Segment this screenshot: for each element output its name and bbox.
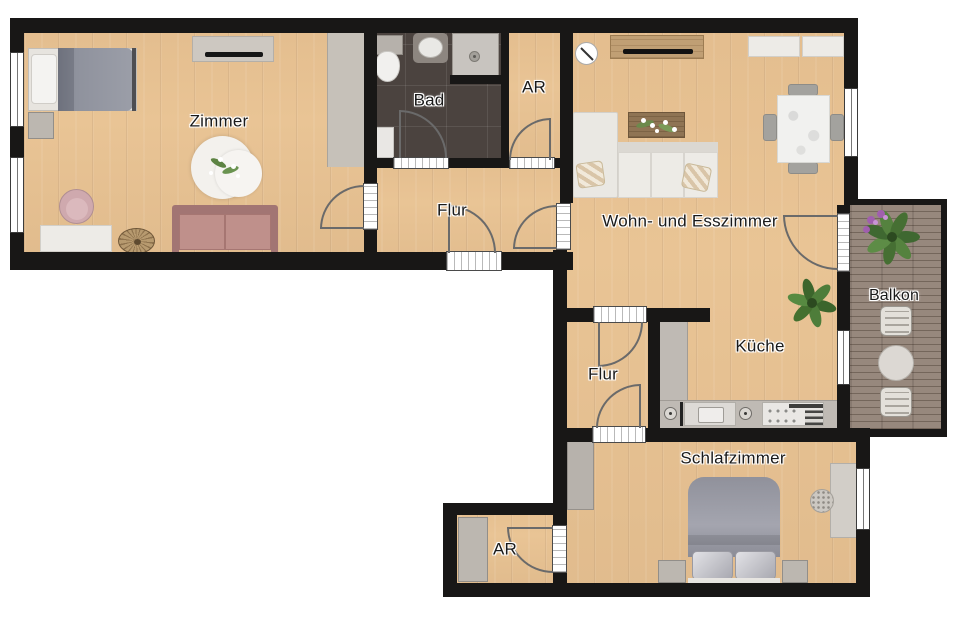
wall-shower-stub xyxy=(450,75,509,84)
door-leaf-wohnzimmer xyxy=(513,247,557,249)
room-label-balkon: Balkon xyxy=(869,288,919,304)
window xyxy=(837,330,850,385)
door-threshold-wohnzimmer xyxy=(556,203,571,250)
nightstand xyxy=(658,560,686,583)
door-threshold-schlafzimmer xyxy=(592,426,646,443)
door-threshold-flur-unten xyxy=(593,306,647,323)
kitchen-sink-unit xyxy=(684,402,736,426)
entrance-door-threshold xyxy=(446,251,502,271)
door-leaf-balcony xyxy=(783,215,838,217)
clock-hand xyxy=(580,47,593,60)
wall-kueche-flur-divider xyxy=(648,308,660,428)
rug-flower xyxy=(236,174,240,178)
door-threshold-ar-unten xyxy=(552,525,567,573)
door-leaf-flur-unten xyxy=(598,322,600,367)
floor-plan: Zimmer Bad AR Flur Wohn- und Esszimmer K… xyxy=(0,0,955,620)
toilet-bowl xyxy=(375,51,400,82)
wall-bottom xyxy=(443,583,870,597)
dining-chair xyxy=(763,114,777,141)
plant-flower-purple xyxy=(873,220,878,225)
nightstand xyxy=(28,112,54,139)
door-threshold-bad xyxy=(393,157,449,169)
room-label-ar-oben: AR xyxy=(522,79,546,96)
wall-ar-unten-left xyxy=(443,503,457,597)
wall-balkon-top xyxy=(850,199,947,205)
bowl-center xyxy=(134,239,141,245)
table-flower xyxy=(641,118,646,123)
door-leaf-ar-unten xyxy=(507,527,553,529)
sofa-armrest xyxy=(271,212,278,252)
coffee-table xyxy=(628,112,685,138)
room-label-wohn-esszimmer: Wohn- und Esszimmer xyxy=(602,213,777,230)
door-threshold-zimmer xyxy=(363,183,378,230)
duvet xyxy=(688,477,780,557)
balcony-door-threshold xyxy=(837,213,850,272)
bed-double xyxy=(688,477,780,583)
door-leaf-zimmer xyxy=(320,227,364,229)
desk xyxy=(40,225,112,252)
wall-ar-wohnzimmer xyxy=(560,33,573,203)
storage-shelf xyxy=(458,517,488,582)
table-flower xyxy=(650,123,655,128)
table-flower xyxy=(672,127,677,132)
sofa-mauve xyxy=(172,205,278,252)
bathroom-sink xyxy=(413,33,448,63)
room-label-ar-unten: AR xyxy=(493,541,517,558)
dining-table xyxy=(777,95,830,163)
room-label-schlafzimmer: Schlafzimmer xyxy=(680,450,785,467)
balcony-chair xyxy=(880,306,912,336)
sofa-cushion xyxy=(651,152,684,198)
shower xyxy=(452,33,499,78)
sofa-cushion xyxy=(179,214,225,250)
chair-slats xyxy=(885,392,909,414)
sink-basin xyxy=(418,37,443,58)
stool xyxy=(810,489,834,513)
plant-flower-purple xyxy=(883,215,888,220)
wall-balkon-right xyxy=(941,199,947,437)
door-leaf-schlafzimmer xyxy=(639,384,641,428)
stove-panel xyxy=(789,404,823,408)
burner-dot xyxy=(664,407,677,420)
sink-basin xyxy=(698,407,724,423)
shower-dot xyxy=(473,55,476,58)
kitchen-counter-side xyxy=(660,322,688,400)
wall-bad-ar-divider xyxy=(501,33,509,158)
stove-knobs xyxy=(766,406,796,424)
duvet-fold xyxy=(688,535,780,545)
stove xyxy=(762,402,824,426)
tv-lowboard xyxy=(610,35,704,59)
pillow xyxy=(692,551,733,580)
room-label-flur-oben: Flur xyxy=(437,202,467,219)
wall-clock xyxy=(575,42,598,65)
burner-dot xyxy=(739,407,752,420)
rug-flower xyxy=(218,157,223,162)
window xyxy=(10,157,24,233)
table-flower xyxy=(663,120,668,125)
sofa-armrest xyxy=(172,212,179,252)
rug-flower xyxy=(209,171,213,175)
balcony-table xyxy=(878,345,914,381)
sofa-back xyxy=(172,205,278,214)
pillow xyxy=(31,54,57,104)
desk-chair xyxy=(59,189,94,224)
burner-center xyxy=(669,412,672,415)
sofa-cushion xyxy=(225,214,271,250)
wardrobe xyxy=(327,33,364,167)
tv-icon xyxy=(623,49,693,54)
sofa-cushion xyxy=(618,152,651,198)
burner-center xyxy=(744,412,747,415)
wardrobe xyxy=(567,440,594,510)
dining-chair xyxy=(788,162,818,174)
door-leaf-ar-oben xyxy=(549,118,551,160)
room-label-zimmer: Zimmer xyxy=(190,113,249,130)
window xyxy=(10,52,24,127)
balcony-chair xyxy=(880,387,912,417)
room-label-bad: Bad xyxy=(414,92,445,109)
duvet-fold xyxy=(58,48,74,111)
dining-chair xyxy=(830,114,844,141)
chair-seat xyxy=(66,198,88,220)
striped-pillow xyxy=(575,160,605,189)
room-label-flur-unten: Flur xyxy=(588,366,618,383)
potted-plant-balkon xyxy=(861,208,923,266)
door-leaf-bad xyxy=(399,110,401,158)
nightstand xyxy=(782,560,808,583)
decor-bowl xyxy=(118,228,155,254)
window xyxy=(844,88,858,157)
chair-slats xyxy=(885,311,909,333)
dressing-table xyxy=(830,463,857,538)
counter-divider xyxy=(680,402,683,426)
pillow xyxy=(735,551,776,580)
stove-grill xyxy=(805,410,823,425)
plant-flower-purple xyxy=(863,226,870,233)
wall-ar-unten-top xyxy=(443,503,553,515)
wall-top xyxy=(10,18,858,33)
room-label-kueche: Küche xyxy=(735,338,784,355)
tv-stand xyxy=(192,36,274,62)
window xyxy=(856,468,870,530)
striped-pillow xyxy=(681,162,713,192)
plant-center xyxy=(807,298,817,308)
plant-center xyxy=(887,232,897,242)
potted-plant-kueche xyxy=(786,277,838,329)
bed-frame xyxy=(132,48,136,111)
sideboard xyxy=(748,36,800,57)
tv-icon xyxy=(205,52,263,57)
wall-balkon-bottom xyxy=(850,429,941,437)
table-flower xyxy=(655,129,659,133)
sofa-back xyxy=(618,142,718,152)
rug-flower xyxy=(231,164,236,169)
bed-single xyxy=(28,48,137,111)
sideboard xyxy=(802,36,844,57)
